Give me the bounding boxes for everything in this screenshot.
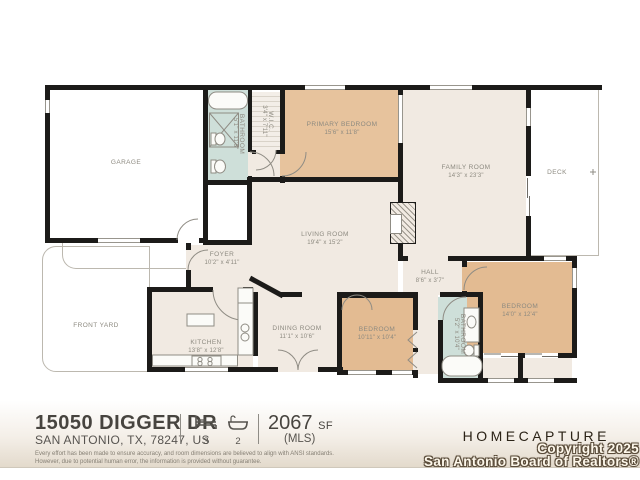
wall	[478, 353, 483, 358]
label-primary-bedroom: PRIMARY BEDROOM15'6" x 11'8"	[307, 121, 378, 137]
watermark-line2: San Antonio Board of Realtors®	[424, 455, 639, 468]
door-opening	[213, 287, 243, 292]
footer: 15050 DIGGER DR SAN ANTONIO, TX, 78247, …	[0, 400, 640, 468]
address-line2: SAN ANTONIO, TX, 78247, US	[35, 433, 210, 447]
wall	[203, 180, 252, 185]
window	[305, 85, 345, 90]
wall	[526, 126, 531, 176]
window	[348, 370, 376, 375]
window	[544, 256, 566, 261]
wall	[514, 378, 528, 383]
door-opening	[186, 250, 191, 270]
wall	[337, 292, 342, 372]
area-unit: SF	[318, 420, 333, 432]
label-hall-bathroom: BATHROOM5'2" x 10'4"	[452, 314, 466, 354]
label-living-room: LIVING ROOM19'4" x 15'2"	[301, 231, 349, 247]
room-hall-corridor	[418, 295, 438, 374]
label-primary-bathroom: BATHROOM5'1" x 11'8"	[231, 114, 245, 154]
beds-count: 3	[193, 436, 219, 447]
disclaimer-line2: However, due to potential human error, t…	[35, 459, 334, 467]
wall	[526, 90, 531, 108]
wall	[376, 370, 392, 375]
wall	[413, 370, 418, 378]
label-foyer: FOYER10'2" x 4'11"	[204, 251, 239, 267]
wall	[526, 216, 531, 256]
window	[98, 238, 140, 243]
porch-outline	[62, 243, 186, 269]
wall	[337, 292, 418, 298]
window	[526, 108, 531, 126]
label-bedroom-2: BEDROOM10'11" x 10'4"	[358, 326, 397, 342]
address-line1: 15050 DIGGER DR	[35, 412, 217, 435]
area-source: (MLS)	[284, 433, 315, 445]
wall	[228, 367, 278, 372]
copyright-watermark: Copyright 2025 San Antonio Board of Real…	[424, 442, 639, 468]
wall	[280, 90, 285, 154]
fireplace-opening	[390, 214, 402, 234]
wall	[438, 320, 443, 378]
wall	[247, 185, 252, 243]
window	[430, 85, 472, 90]
wall	[186, 243, 191, 250]
wall	[203, 87, 208, 243]
wall	[281, 292, 302, 297]
divider	[258, 414, 259, 444]
door-opening	[438, 297, 443, 320]
wall	[572, 288, 577, 358]
wall	[554, 378, 577, 383]
disclaimer-line1: Every effort has been made to ensure acc…	[35, 451, 334, 459]
wall	[398, 244, 403, 256]
door-opening	[248, 152, 252, 176]
wall	[243, 287, 253, 292]
label-garage: GARAGE	[111, 159, 141, 167]
wall	[147, 367, 185, 372]
window	[488, 378, 514, 383]
wall	[398, 143, 403, 203]
wall	[253, 292, 258, 304]
room-kitchen	[152, 292, 253, 367]
wall	[413, 292, 418, 330]
door-opening	[278, 367, 318, 372]
label-front-yard: FRONT YARD	[73, 322, 119, 330]
window	[185, 367, 228, 372]
wall	[438, 378, 488, 383]
baths-count: 2	[225, 436, 251, 447]
door-opening	[408, 256, 448, 261]
area-value: 2067 SF	[268, 412, 333, 435]
door-opening	[256, 150, 276, 154]
door-opening	[280, 154, 285, 176]
wall	[247, 177, 403, 182]
door-opening	[178, 238, 199, 243]
sliding-door-opening	[526, 176, 531, 216]
bathtub-icon	[226, 414, 250, 432]
floor-plan: GARAGE BATHROOM5'1" x 11'8" W.I.C.3'4" x…	[0, 0, 640, 400]
label-kitchen: KITCHEN13'8" x 12'8"	[188, 339, 224, 355]
wall	[147, 287, 213, 292]
door-opening	[462, 267, 467, 291]
wall	[478, 295, 483, 383]
window	[528, 378, 554, 383]
wall	[398, 256, 408, 261]
cased-opening	[398, 95, 403, 143]
label-dining-room: DINING ROOM11'1" x 10'6"	[272, 325, 321, 341]
window	[392, 370, 412, 375]
wall	[440, 292, 483, 297]
wall	[337, 370, 348, 375]
window	[572, 268, 577, 288]
wall	[248, 90, 252, 152]
wall	[518, 358, 523, 378]
door-opening	[413, 352, 418, 370]
door-opening	[413, 330, 418, 348]
window	[45, 100, 50, 113]
wall	[147, 287, 152, 372]
floor-plan-page: GARAGE BATHROOM5'1" x 11'8" W.I.C.3'4" x…	[0, 0, 640, 480]
room-closets	[483, 358, 572, 378]
label-family-room: FAMILY ROOM14'3" x 23'3"	[442, 164, 491, 180]
wall	[253, 304, 258, 356]
wall	[203, 240, 252, 245]
label-hall: HALL8'6" x 3'7"	[416, 269, 444, 285]
label-bedroom-3: BEDROOM14'0" x 12'4"	[502, 303, 538, 319]
wall	[572, 261, 577, 268]
label-wic: W.I.C.3'4" x 7'11"	[260, 105, 274, 137]
disclaimer: Every effort has been made to ensure acc…	[35, 451, 334, 466]
label-deck: DECK	[547, 169, 567, 177]
bed-icon	[193, 414, 219, 432]
divider	[180, 414, 181, 444]
